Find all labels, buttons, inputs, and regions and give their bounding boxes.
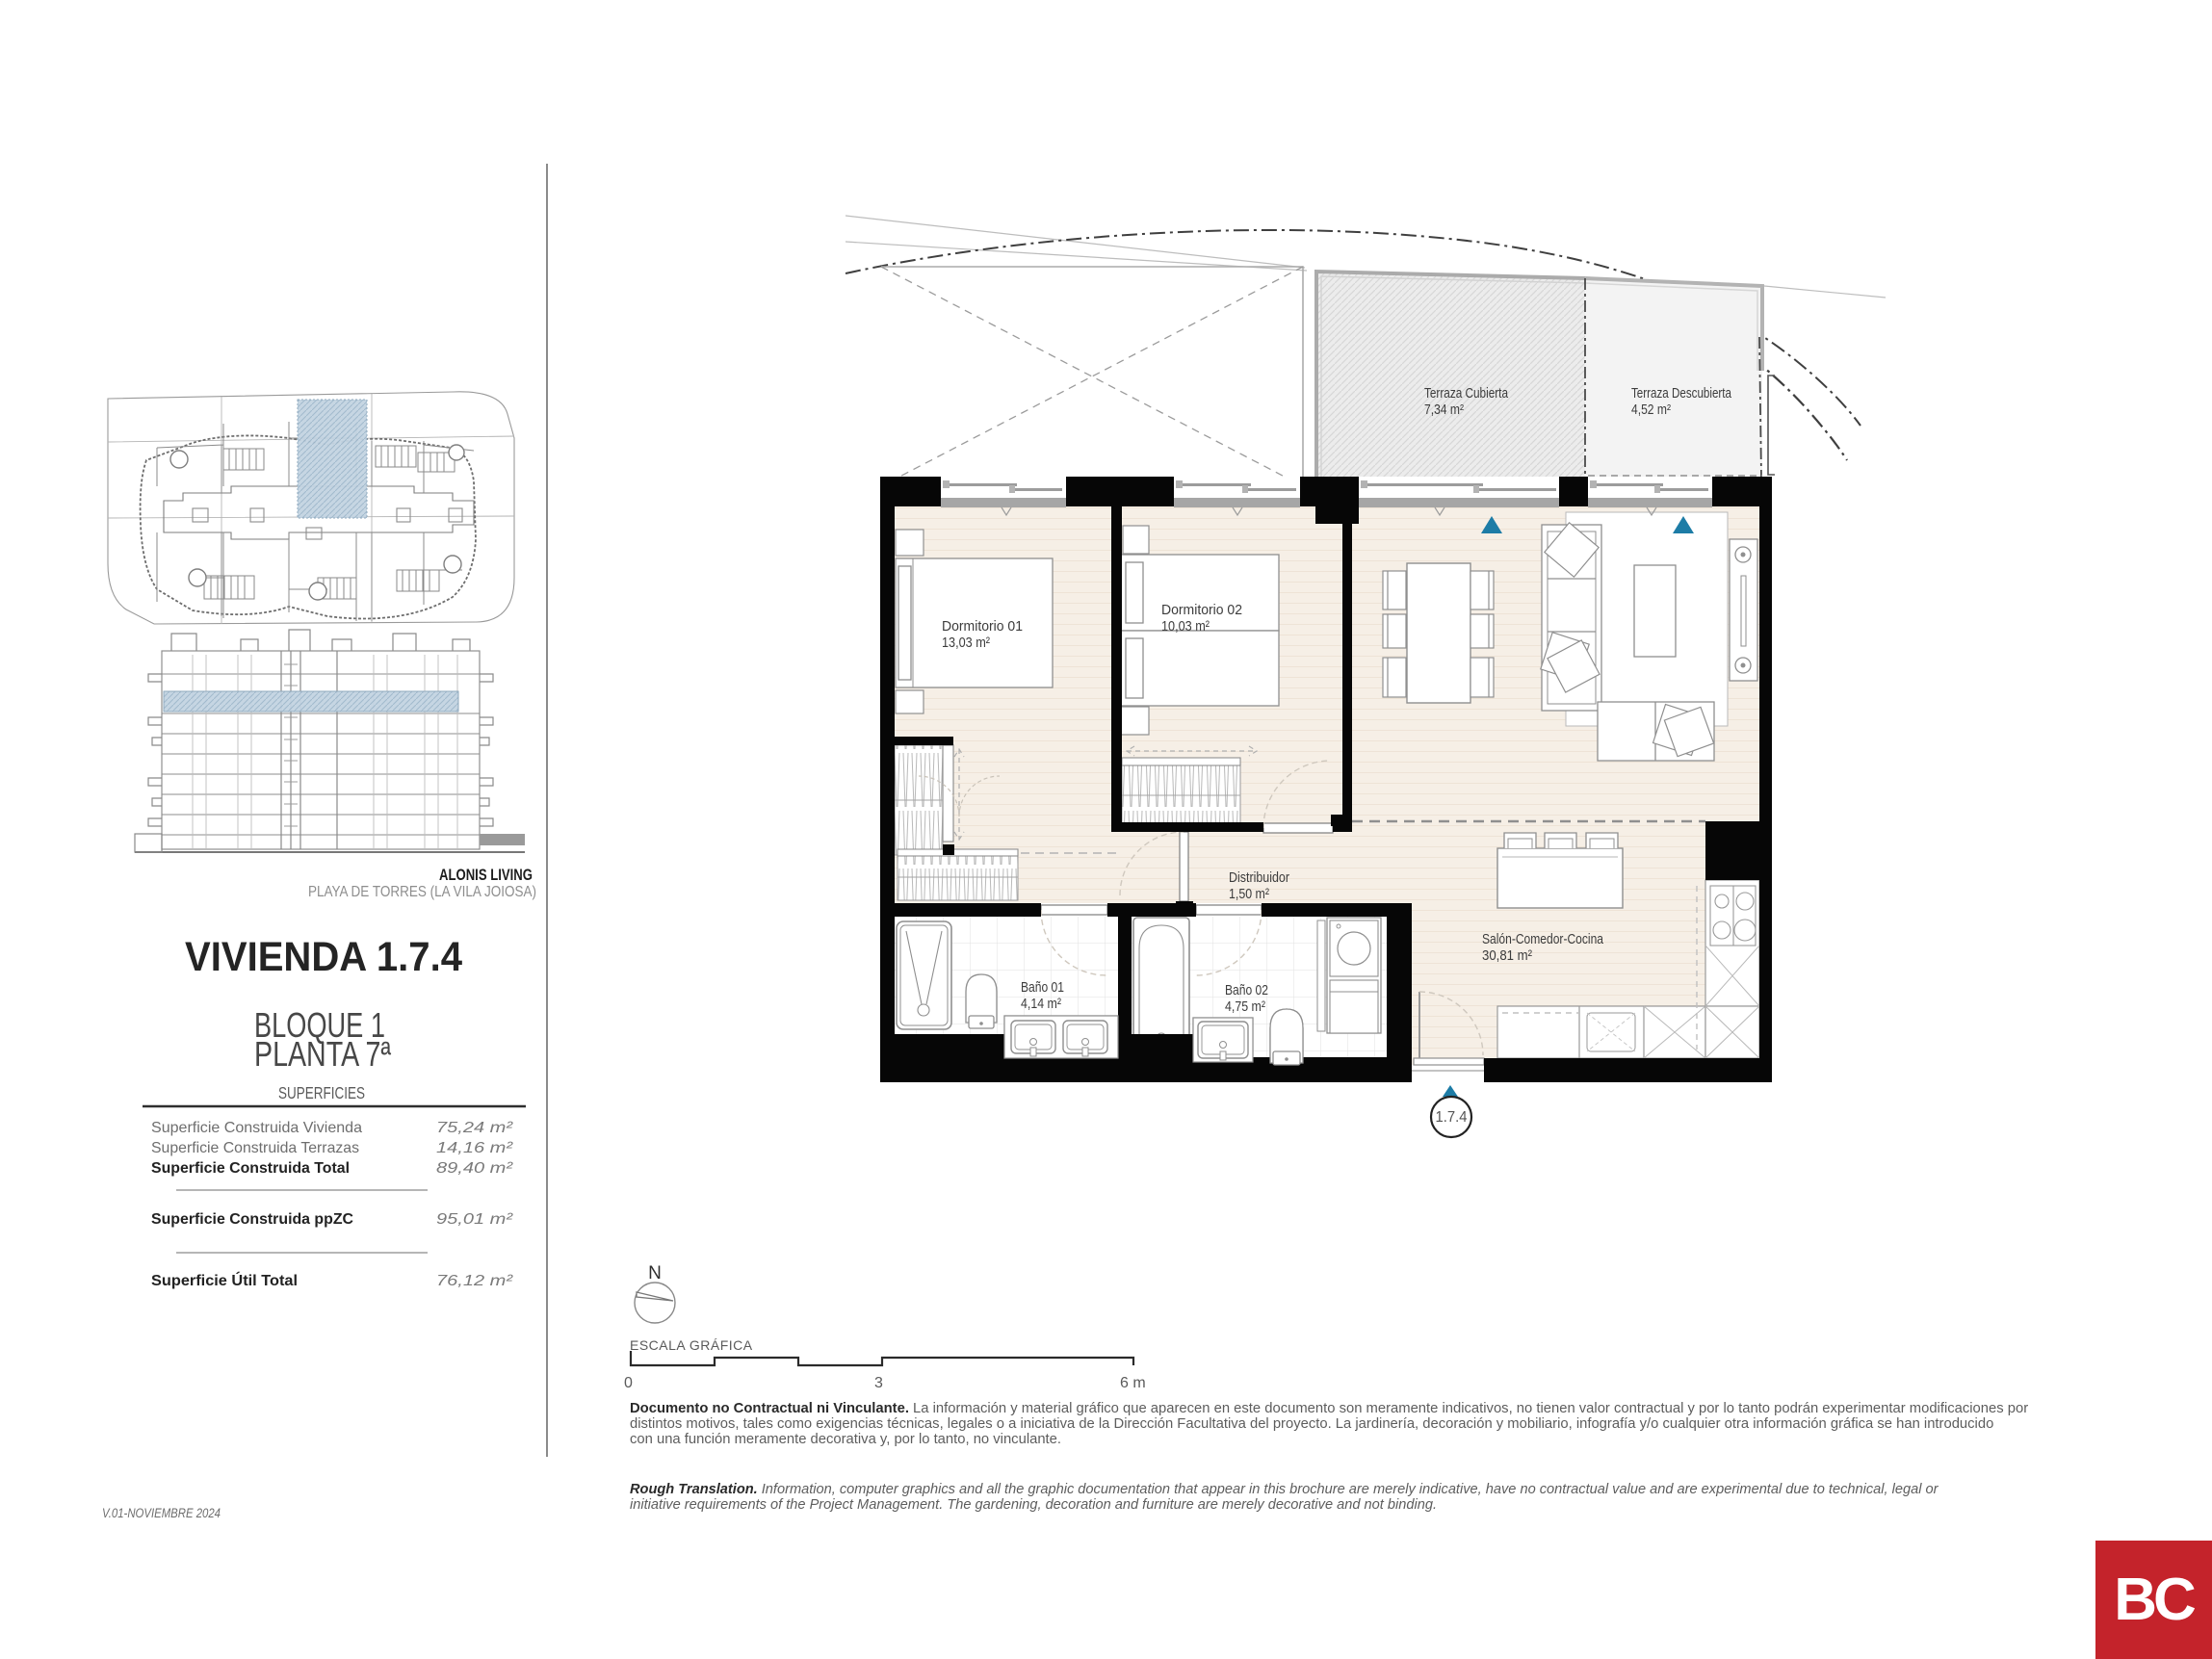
svg-text:0: 0 — [624, 1375, 633, 1391]
svg-text:3: 3 — [874, 1375, 883, 1391]
svg-text:Superficie Construida ppZC: Superficie Construida ppZC — [151, 1211, 353, 1228]
svg-text:Baño 02: Baño 02 — [1225, 982, 1268, 998]
svg-text:4,14 m²: 4,14 m² — [1021, 996, 1061, 1012]
svg-text:10,03 m²: 10,03 m² — [1161, 618, 1210, 635]
svg-text:ALONIS LIVING: ALONIS LIVING — [439, 866, 533, 884]
svg-text:ESCALA GRÁFICA: ESCALA GRÁFICA — [630, 1337, 753, 1353]
svg-text:89,40 m²: 89,40 m² — [436, 1160, 513, 1177]
svg-text:4,52 m²: 4,52 m² — [1631, 402, 1671, 418]
svg-text:N: N — [648, 1263, 662, 1283]
svg-text:SUPERFICIES: SUPERFICIES — [278, 1083, 365, 1102]
svg-text:distintos motivos, tales como: distintos motivos, tales como exigencias… — [630, 1416, 1993, 1432]
svg-text:Terraza Descubierta: Terraza Descubierta — [1631, 386, 1732, 402]
svg-text:1.7.4: 1.7.4 — [1436, 1109, 1468, 1126]
svg-text:PLANTA 7ª: PLANTA 7ª — [254, 1034, 392, 1074]
svg-text:6 m: 6 m — [1120, 1375, 1146, 1391]
svg-text:Superficie Construida Total: Superficie Construida Total — [151, 1160, 350, 1177]
svg-text:VIVIENDA 1.7.4: VIVIENDA 1.7.4 — [185, 934, 462, 980]
svg-text:con una función meramente deco: con una función meramente decorativa y, … — [630, 1432, 1061, 1447]
svg-text:V.01-NOVIEMBRE 2024: V.01-NOVIEMBRE 2024 — [102, 1506, 221, 1520]
svg-text:75,24 m²: 75,24 m² — [436, 1120, 513, 1136]
svg-text:30,81 m²: 30,81 m² — [1482, 947, 1532, 964]
svg-text:14,16 m²: 14,16 m² — [436, 1140, 513, 1156]
svg-text:Dormitorio 02: Dormitorio 02 — [1161, 602, 1242, 618]
svg-text:PLAYA DE TORRES (LA VILA JOIOS: PLAYA DE TORRES (LA VILA JOIOSA) — [308, 884, 536, 900]
svg-text:BC: BC — [2114, 1567, 2196, 1633]
svg-text:Dormitorio 01: Dormitorio 01 — [942, 618, 1023, 635]
svg-text:1,50 m²: 1,50 m² — [1229, 886, 1269, 902]
svg-text:76,12 m²: 76,12 m² — [436, 1273, 513, 1289]
svg-text:Rough Translation. Information: Rough Translation. Information, computer… — [630, 1482, 1939, 1497]
svg-text:Distribuidor: Distribuidor — [1229, 869, 1289, 886]
svg-text:initiative requirements of the: initiative requirements of the Project M… — [630, 1497, 1437, 1513]
svg-text:Salón-Comedor-Cocina: Salón-Comedor-Cocina — [1482, 931, 1604, 947]
svg-text:Superficie Construida Terrazas: Superficie Construida Terrazas — [151, 1140, 359, 1156]
svg-text:95,01 m²: 95,01 m² — [436, 1211, 513, 1228]
svg-text:Baño 01: Baño 01 — [1021, 979, 1064, 996]
svg-text:Superficie Útil Total: Superficie Útil Total — [151, 1271, 298, 1289]
svg-text:13,03 m²: 13,03 m² — [942, 635, 990, 651]
svg-text:Terraza Cubierta: Terraza Cubierta — [1424, 386, 1509, 402]
svg-text:7,34 m²: 7,34 m² — [1424, 402, 1464, 418]
svg-text:Documento no Contractual ni Vi: Documento no Contractual ni Vinculante. … — [630, 1401, 2028, 1416]
svg-text:Superficie Construida Vivienda: Superficie Construida Vivienda — [151, 1120, 362, 1136]
svg-text:4,75 m²: 4,75 m² — [1225, 998, 1265, 1015]
